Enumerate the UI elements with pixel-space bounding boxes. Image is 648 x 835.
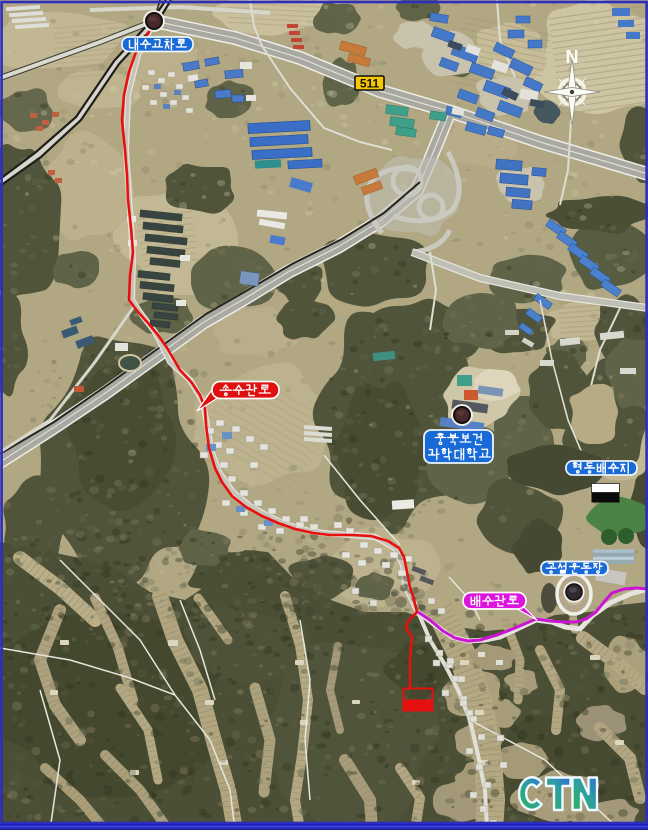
svg-text:511: 511 — [360, 77, 380, 91]
svg-text:N: N — [566, 47, 579, 67]
